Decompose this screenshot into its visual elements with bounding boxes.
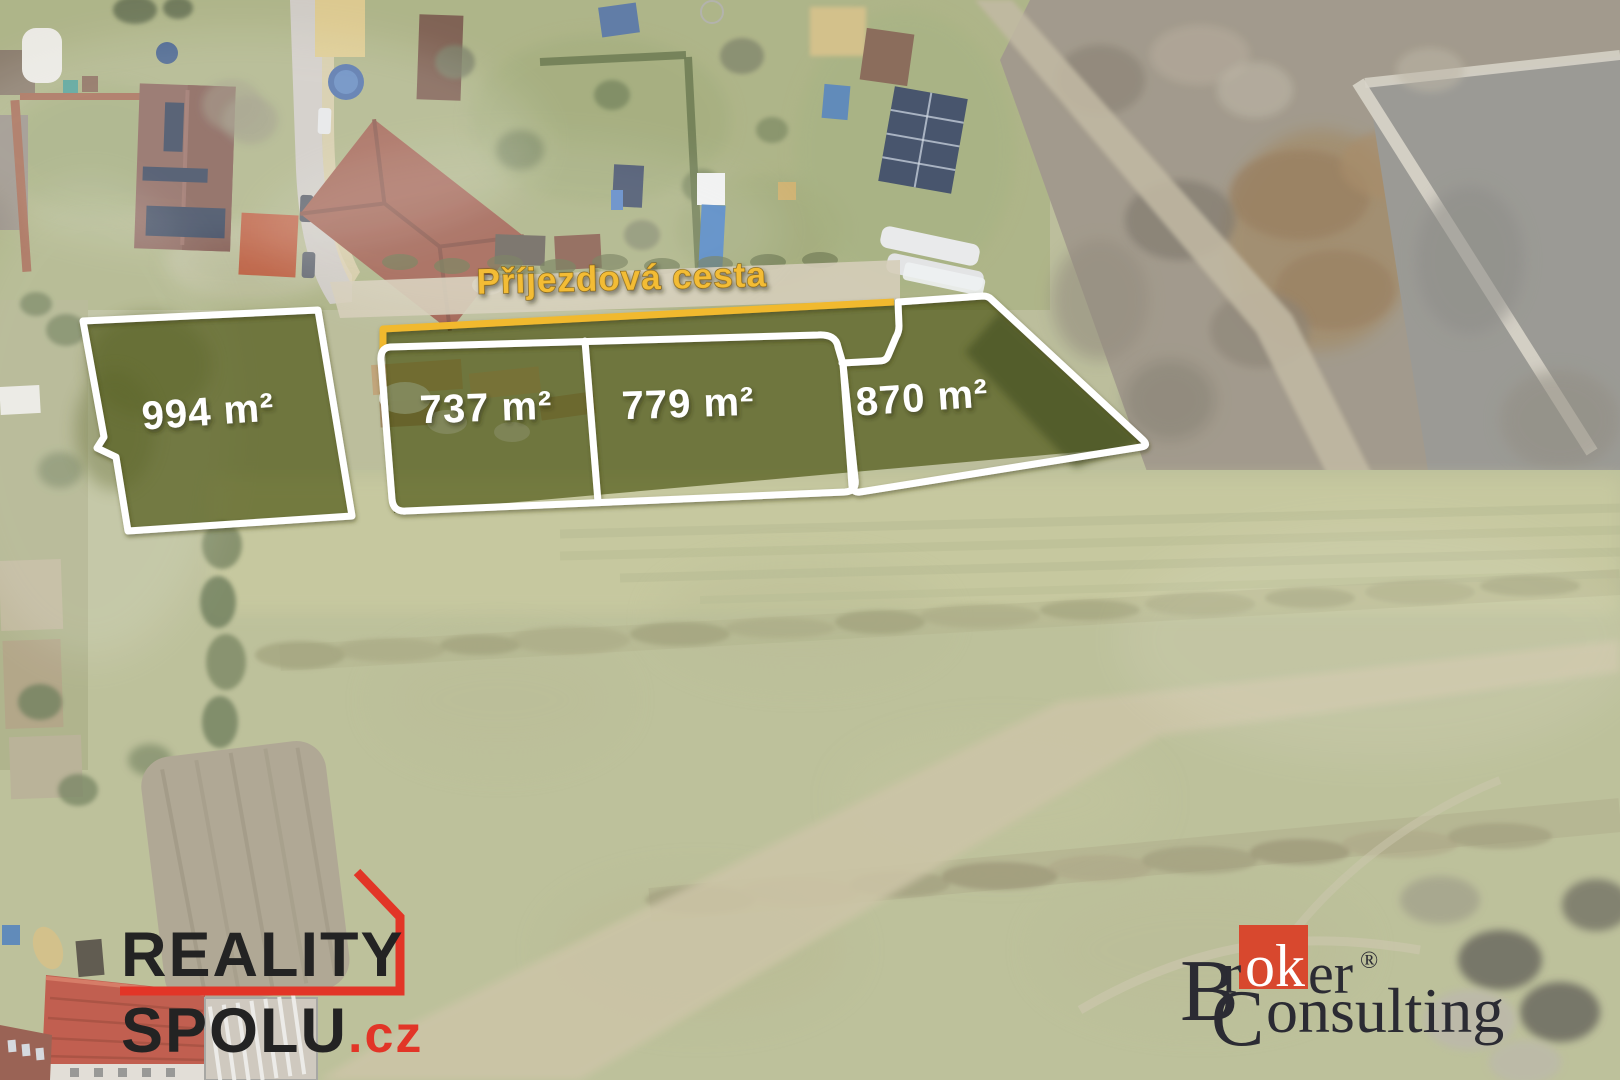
aerial-listing-image: 994 m² 737 m² 779 m² 870 m² Příjezdová c… (0, 0, 1620, 1080)
parcel-area-label-1: 994 m² (140, 385, 275, 438)
parcel-area-label-2: 737 m² (419, 384, 553, 433)
consulting-c: C (1211, 975, 1264, 1063)
access-road-label: Příjezdová cesta (476, 255, 767, 302)
fog (0, 0, 1620, 1080)
parcel-area-label-4: 870 m² (854, 371, 989, 424)
reality-spolu-line1: REALITY (121, 920, 405, 990)
consulting-rest: onsulting (1266, 975, 1504, 1046)
reality-spolu-tld: .cz (348, 1006, 423, 1064)
broker-registered: ® (1360, 948, 1378, 974)
reality-spolu-line2: SPOLU.cz (121, 996, 423, 1066)
aerial-photo (0, 0, 1620, 1080)
parcel-area-label-3: 779 m² (621, 380, 755, 429)
